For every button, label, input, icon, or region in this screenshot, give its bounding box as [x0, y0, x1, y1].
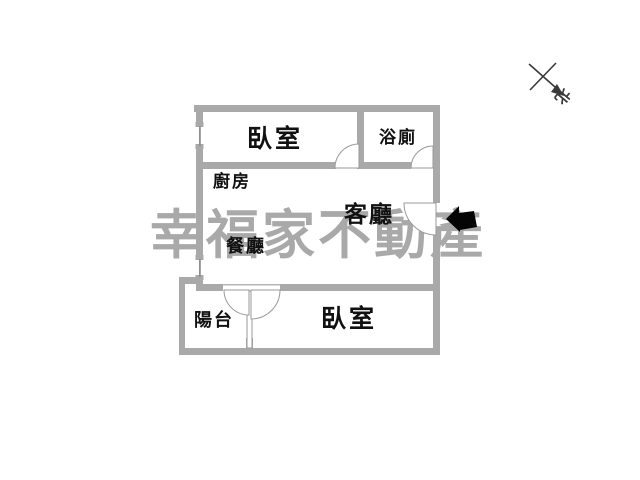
wall-balcony-left [179, 277, 185, 355]
room-label-kitchen: 廚房 [213, 174, 251, 191]
window-left-upper [199, 126, 201, 146]
door-entrance [404, 203, 436, 235]
room-label-dining-room: 餐廳 [226, 238, 266, 256]
doors [224, 144, 436, 319]
room-label-living-room: 客廳 [344, 204, 394, 227]
room-label-bathroom: 浴廁 [379, 130, 417, 147]
floor-plan-image: 幸福家不動產 [0, 0, 640, 480]
floor-plan-drawing [0, 0, 640, 480]
door-header-line [223, 284, 280, 286]
wall-lower-divider-right [280, 284, 440, 291]
wall-right-upper [433, 105, 440, 203]
wall-top [194, 105, 440, 112]
room-label-bedroom-top: 臥室 [247, 126, 303, 151]
room-label-balcony: 陽台 [194, 312, 234, 330]
window-left-lower [199, 259, 201, 277]
wall-bottom [179, 348, 440, 355]
door-bathroom [411, 146, 433, 168]
wall-bathroom-bottom [357, 162, 411, 169]
wall-right-lower [433, 235, 440, 352]
door-balcony-right [251, 290, 280, 319]
door-bedroom-top [335, 144, 359, 168]
wall-lower-divider-left [196, 284, 223, 291]
wall-bedroom-bottom [196, 162, 336, 169]
wall-left-c [196, 169, 203, 257]
room-label-bedroom-bottom: 臥室 [321, 306, 377, 331]
entrance-arrow-icon [446, 206, 477, 232]
